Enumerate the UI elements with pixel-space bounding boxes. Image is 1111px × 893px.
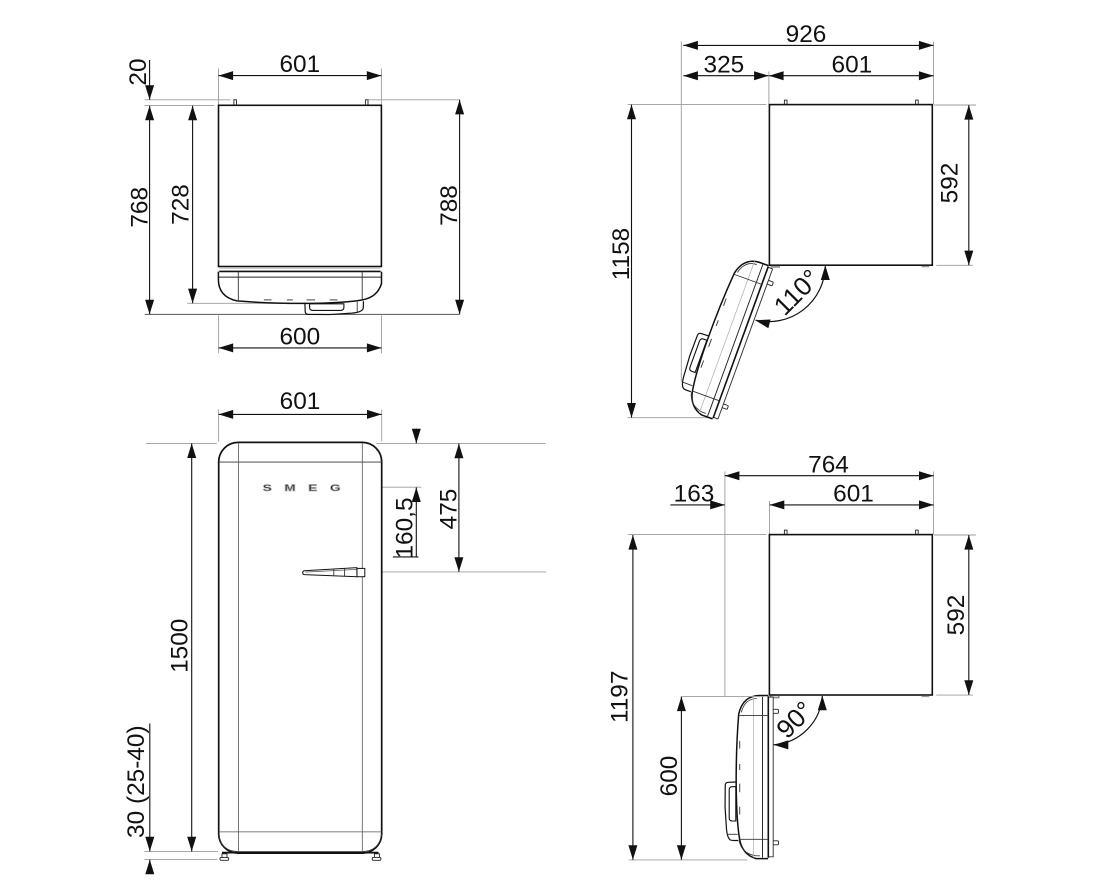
svg-text:1158: 1158 — [608, 228, 635, 280]
svg-text:600: 600 — [279, 324, 320, 351]
svg-text:601: 601 — [280, 388, 321, 415]
svg-text:788: 788 — [436, 185, 463, 226]
svg-text:592: 592 — [943, 595, 970, 636]
svg-text:600: 600 — [656, 756, 683, 797]
svg-text:163: 163 — [674, 480, 715, 507]
svg-text:601: 601 — [832, 51, 873, 78]
svg-text:SMEG: SMEG — [263, 484, 353, 494]
svg-text:601: 601 — [833, 480, 874, 507]
svg-text:160,5: 160,5 — [392, 497, 419, 558]
svg-text:592: 592 — [937, 163, 964, 204]
svg-text:926: 926 — [786, 21, 827, 48]
svg-text:30 (25-40): 30 (25-40) — [123, 725, 150, 838]
svg-text:1500: 1500 — [167, 619, 194, 673]
svg-text:768: 768 — [127, 187, 154, 228]
svg-text:601: 601 — [279, 51, 320, 78]
svg-text:325: 325 — [704, 51, 745, 78]
svg-text:1197: 1197 — [606, 671, 633, 723]
svg-text:728: 728 — [168, 184, 195, 225]
svg-text:764: 764 — [808, 451, 849, 478]
svg-text:475: 475 — [436, 489, 463, 530]
svg-text:20: 20 — [125, 58, 152, 85]
